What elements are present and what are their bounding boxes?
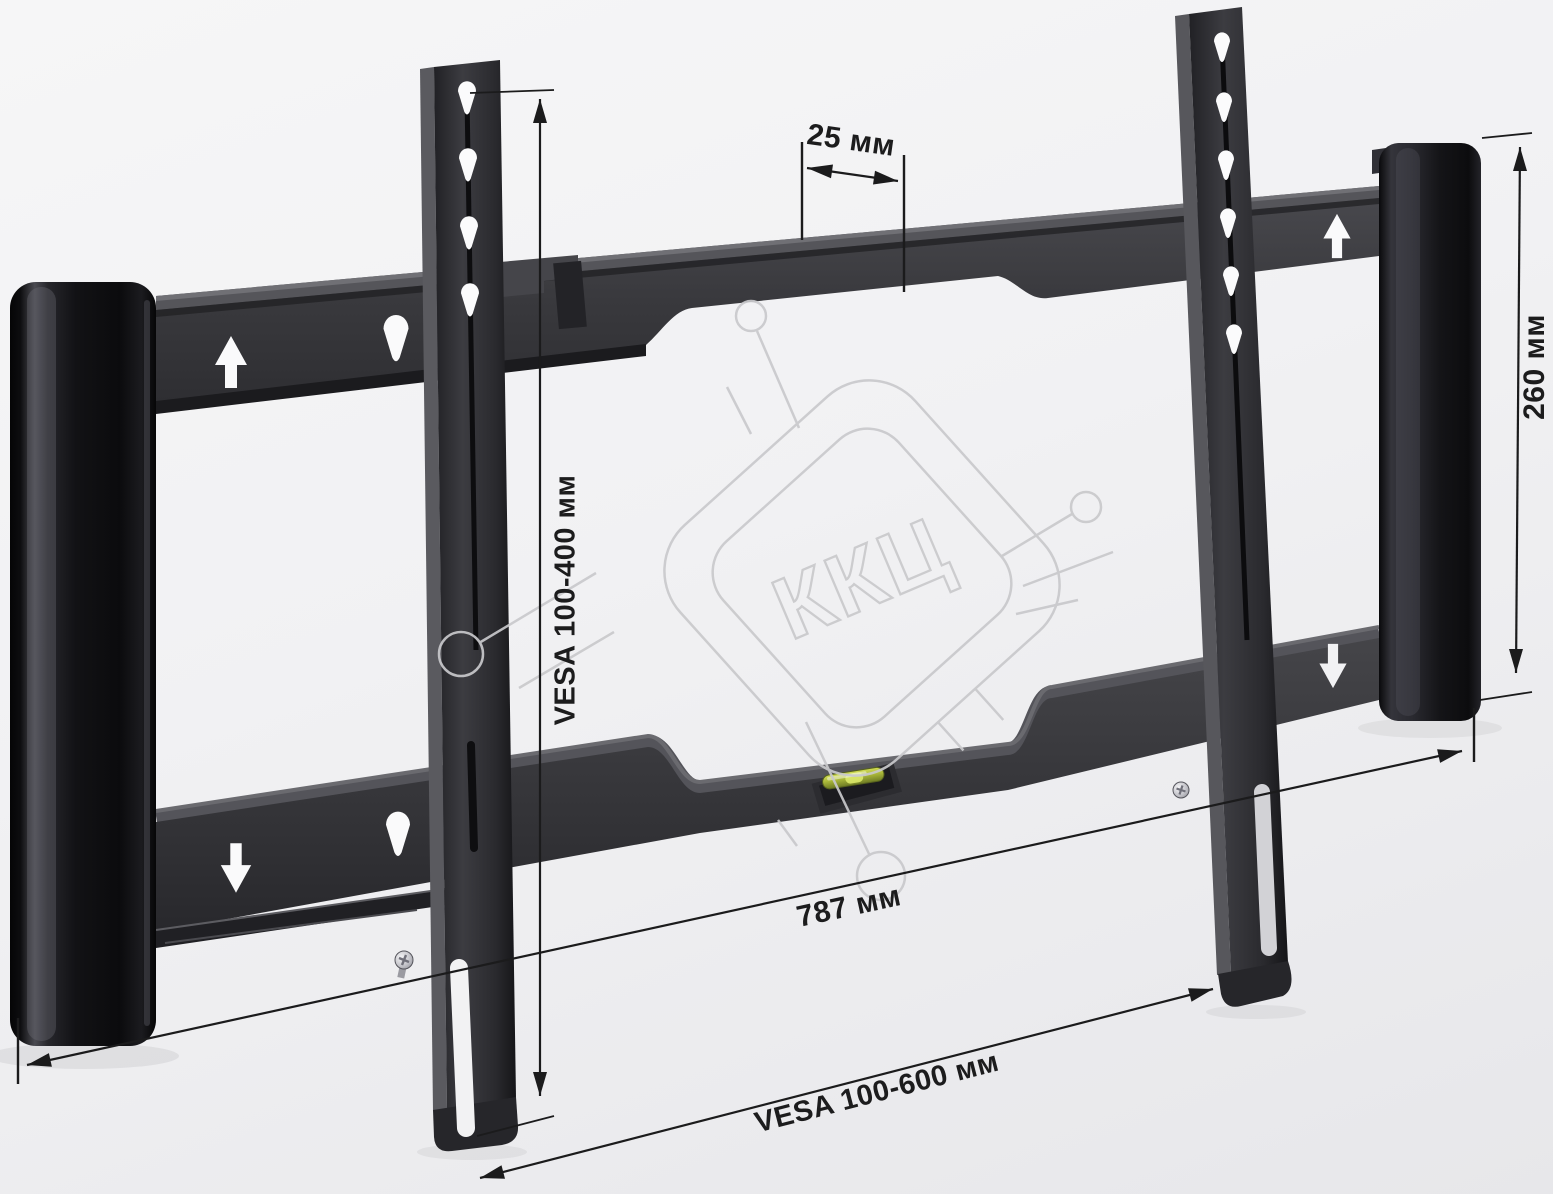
left-strap-bottom-slot [459, 968, 466, 1128]
screw-left [395, 951, 413, 978]
bottom-rail [156, 627, 1379, 948]
right-vesa-strap [1175, 7, 1292, 1007]
screw-right [1173, 782, 1189, 798]
product-dimension-diagram: ККЦ [0, 0, 1553, 1194]
watermark-text: ККЦ [759, 497, 964, 659]
left-strap-mid-slot [471, 745, 474, 848]
dimension-label-vesa-100-400: VESA 100-400 мм [550, 475, 583, 726]
left-end-cap [10, 282, 156, 1046]
right-end-cap [1372, 143, 1481, 721]
chip-pin-top [727, 301, 799, 434]
wall-mount-illustration: ККЦ [0, 0, 1553, 1194]
right-cap-body [1379, 143, 1481, 721]
left-cap-highlight [27, 287, 56, 1041]
left-cap-rim-light [144, 300, 150, 1026]
left-vesa-strap [420, 60, 518, 1151]
right-cap-highlight [1396, 148, 1420, 716]
top-rail-hook-tab [553, 261, 587, 329]
dimension-label-260mm: 260 мм [1518, 314, 1552, 420]
right-strap-bottom-slot [1262, 792, 1269, 948]
